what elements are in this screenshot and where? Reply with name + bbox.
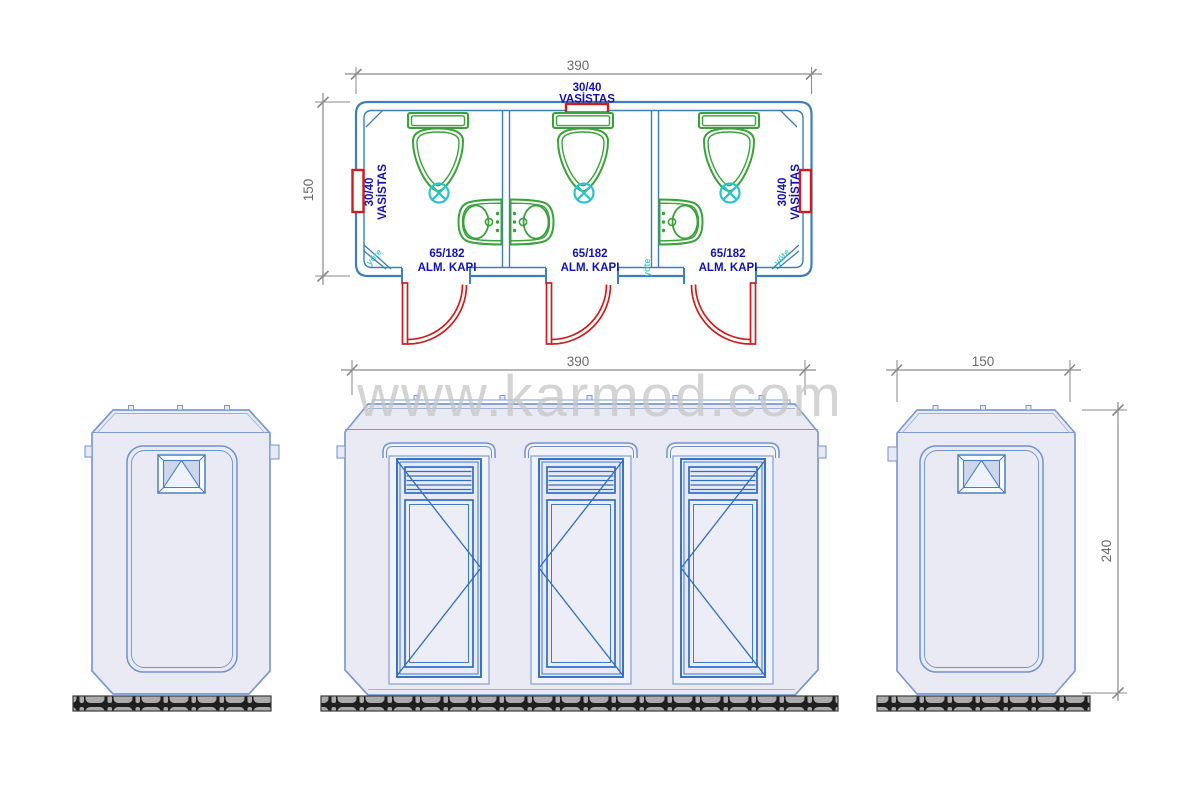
right-elevation-window [958,455,1005,493]
right-dim-height-label: 240 [1099,540,1114,563]
sink-unit-2 [511,200,554,245]
door-size-3: 65/182 [710,248,745,260]
sink-unit-3 [660,200,703,245]
left-body [92,410,270,694]
drain-unit-3 [721,184,740,203]
floor-plan: 390 150 30/40 VASİSTAS 30/40 VASİSTAS 30… [301,58,822,344]
right-dim-width-label: 150 [972,354,995,369]
left-elevation [73,406,279,712]
right-ground [877,696,1090,711]
left-side-tab-a [85,446,92,457]
door-size-1: 65/182 [429,248,464,260]
door-type-2: ALM. KAPI [561,262,620,274]
toilet-unit-3 [699,113,759,191]
door-size-2: 65/182 [572,248,607,260]
left-elevation-window [158,455,205,493]
right-elevation: 150 240 [877,354,1127,711]
corner-mark-3: yöte [772,247,792,267]
front-side-tab-right [818,446,826,458]
top-window-size: 30/40 [573,82,602,94]
window-left [353,170,364,212]
drain-unit-2 [575,184,594,203]
plan-dim-depth-label: 150 [301,179,316,202]
sink-unit-1 [459,200,502,245]
wc-cabin-drawing: 390 150 30/40 VASİSTAS 30/40 VASİSTAS 30… [0,0,1200,800]
plan-dim-depth [315,93,350,285]
left-side-tab-b [270,445,279,459]
corner-mark-2: yöte [642,258,652,277]
toilet-unit-1 [408,113,468,191]
right-window-type: VASİSTAS [789,164,802,220]
left-window-type: VASİSTAS [376,164,389,220]
technical-drawing-page: 390 150 30/40 VASİSTAS 30/40 VASİSTAS 30… [0,0,1200,800]
right-window-size: 30/40 [777,178,789,207]
door-swing-2 [547,283,611,344]
left-ground [73,696,271,711]
door-type-1: ALM. KAPI [418,262,477,274]
left-window-size: 30/40 [364,178,376,207]
door-type-3: ALM. KAPI [699,262,758,274]
door-swing-3 [692,283,756,344]
right-side-tab [888,447,897,461]
front-ground [321,696,838,711]
toilet-unit-2 [553,113,613,191]
door-swing-1 [403,283,467,344]
plan-dim-width-label: 390 [567,58,590,73]
front-side-tab-left [337,446,345,458]
top-window-type: VASİSTAS [559,93,615,106]
karmod-watermark: www.karmod.com [356,364,843,429]
drain-unit-1 [430,184,449,203]
